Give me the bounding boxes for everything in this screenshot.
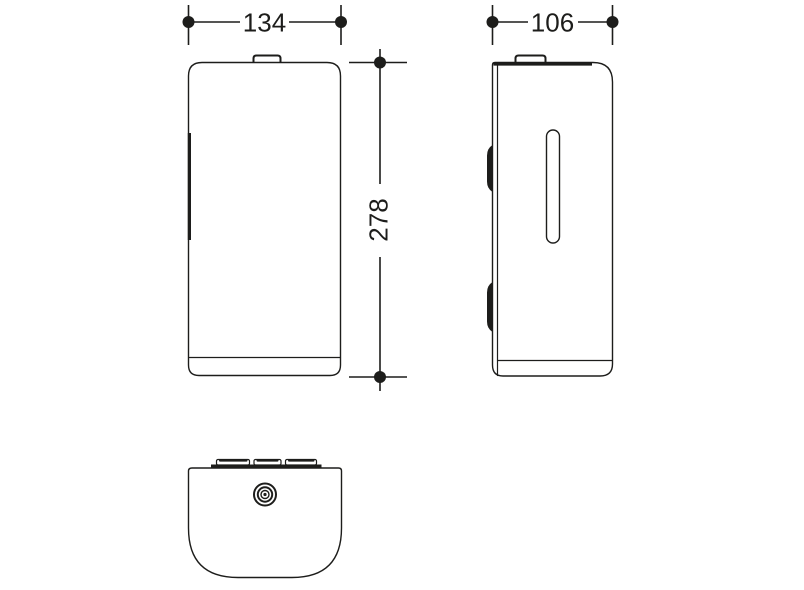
height-dimension: 278 xyxy=(349,49,407,391)
nozzle-center-dot xyxy=(263,493,266,496)
width-dim-value: 134 xyxy=(243,8,286,38)
side-view-mount-clip-upper xyxy=(487,145,493,192)
drawing-canvas: 134 278 106 xyxy=(0,0,804,590)
depth-dim-dot-right xyxy=(607,16,619,28)
depth-dim-value: 106 xyxy=(531,8,574,38)
side-view-mount-clip-lower xyxy=(487,282,493,332)
side-view-top-tab xyxy=(516,56,546,63)
bottom-view-nozzle xyxy=(254,484,276,506)
depth-dim-dot-left xyxy=(487,16,499,28)
front-view xyxy=(189,56,341,376)
front-view-outline xyxy=(189,63,341,376)
width-dim-dot-right xyxy=(335,16,347,28)
height-dim-value: 278 xyxy=(364,198,394,241)
technical-drawing: 134 278 106 xyxy=(0,0,804,590)
bottom-view xyxy=(189,460,342,578)
depth-dimension: 106 xyxy=(487,5,619,45)
height-dim-dot-bottom xyxy=(374,371,386,383)
front-view-top-tab xyxy=(254,56,281,63)
side-view xyxy=(487,56,613,377)
bottom-view-hinge-tabs xyxy=(217,460,317,466)
side-view-sight-slot xyxy=(547,130,560,243)
side-view-outline xyxy=(493,63,613,377)
width-dimension: 134 xyxy=(183,5,348,45)
width-dim-dot-left xyxy=(183,16,195,28)
height-dim-dot-top xyxy=(374,57,386,69)
